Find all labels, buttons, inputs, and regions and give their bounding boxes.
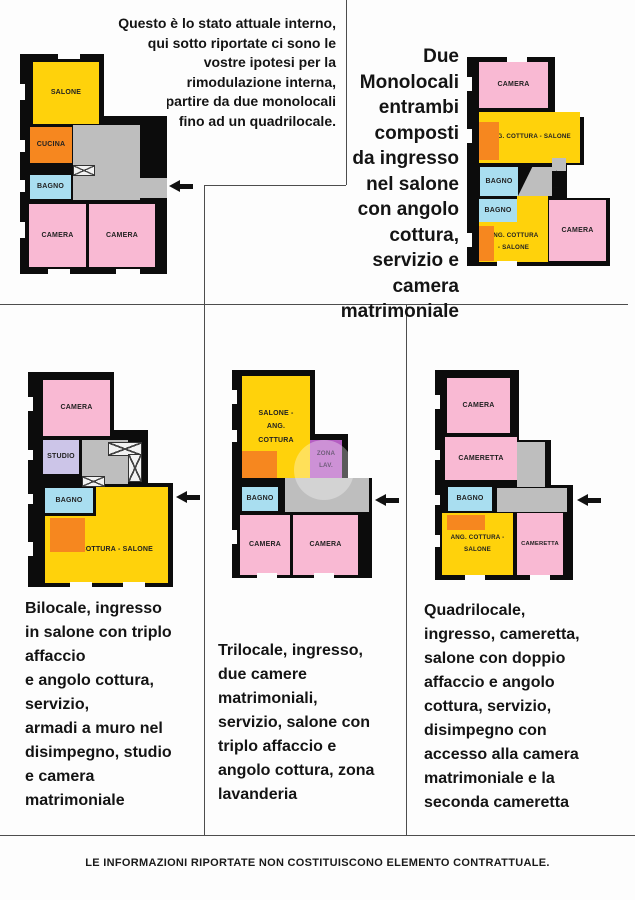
room-camera: CAMERA — [240, 515, 290, 575]
plan-cutout — [519, 370, 573, 440]
disclaimer-text: LE INFORMAZIONI RIPORTATE NON COSTITUISC… — [0, 857, 635, 869]
window-marker — [232, 430, 237, 442]
window-marker — [435, 395, 440, 409]
arrow-tail — [180, 184, 193, 189]
room-camera: CAMERA — [549, 200, 606, 261]
plan-cutout — [114, 372, 173, 430]
room-bagno: BAGNO — [480, 167, 518, 196]
monolocali-title: Due Monolocali entrambi composti da ingr… — [285, 44, 459, 325]
floorplan-quadrilocale: CAMERA CAMERETTA BAGNO ANG. COTTURA - SA… — [435, 370, 573, 580]
window-marker — [20, 140, 25, 152]
window-marker — [314, 573, 334, 578]
room-bagno: BAGNO — [479, 199, 517, 222]
entry-corridor — [567, 165, 610, 198]
window-marker — [465, 575, 485, 580]
room-cameretta: CAMERETTA — [517, 513, 563, 575]
arrow-head — [577, 494, 588, 506]
window-marker — [232, 390, 237, 404]
window-marker — [435, 495, 440, 505]
window-marker — [467, 129, 472, 143]
floorplan-stato-attuale: SALONE CUCINA BAGNO CAMERA CAMERA — [20, 54, 167, 274]
window-marker — [530, 575, 550, 580]
trilocale-description: Trilocale, ingresso, due camere matrimon… — [218, 639, 400, 807]
window-marker — [20, 180, 25, 192]
room-camera: CAMERA — [447, 378, 510, 433]
room-camera: CAMERA — [43, 380, 110, 436]
room-salone: SALONE — [33, 62, 99, 124]
floorplan-trilocale: SALONE - ANG. COTTURA ZONA LAV. BAGNO CA… — [232, 370, 372, 578]
wardrobe-hatch — [128, 454, 142, 482]
window-marker — [20, 222, 25, 238]
kitchen-corner — [447, 515, 485, 530]
hallway — [73, 125, 140, 200]
room-camera: CAMERA — [293, 515, 358, 575]
wardrobe-hatch — [73, 165, 95, 176]
plan-cutout — [315, 370, 372, 434]
window-marker — [467, 233, 472, 247]
room-cucina: CUCINA — [30, 127, 72, 163]
plan-cutout — [555, 57, 610, 117]
room-bagno: BAGNO — [45, 488, 93, 513]
window-marker — [116, 269, 140, 274]
plan-cutout — [148, 430, 173, 483]
arrow-tail — [187, 495, 200, 500]
room-camera: CAMERA — [479, 62, 548, 108]
room-bagno: BAGNO — [448, 487, 492, 511]
hallway-exit — [140, 178, 167, 198]
watermark-circle — [294, 440, 354, 500]
room-cameretta: CAMERETTA — [445, 437, 517, 480]
room-camera: CAMERA — [89, 204, 155, 267]
window-marker — [58, 54, 80, 59]
entrance-arrow-icon — [169, 180, 193, 192]
window-marker — [28, 397, 33, 411]
room-bagno: BAGNO — [30, 175, 71, 199]
entrance-arrow-icon — [176, 491, 200, 503]
salone-column — [96, 487, 168, 516]
kitchen-corner — [479, 226, 494, 261]
quadrilocale-description: Quadrilocale, ingresso, cameretta, salon… — [424, 599, 614, 815]
room-studio: STUDIO — [43, 440, 79, 474]
window-marker — [435, 535, 440, 547]
window-marker — [232, 530, 237, 544]
kitchen-corner — [479, 122, 499, 160]
window-marker — [28, 494, 33, 504]
wardrobe-hatch — [82, 476, 105, 487]
window-marker — [123, 582, 145, 587]
plan-cutout — [584, 117, 610, 165]
kitchen-corner — [50, 518, 85, 552]
window-marker — [48, 269, 70, 274]
arrow-head — [169, 180, 180, 192]
window-marker — [497, 261, 517, 266]
hallway — [517, 442, 545, 487]
hallway — [518, 167, 552, 196]
window-marker — [507, 57, 527, 62]
entry-arrow-up-icon: ↑ — [554, 169, 559, 179]
room-bagno: BAGNO — [242, 487, 278, 511]
entrance-arrow-icon — [375, 494, 399, 506]
room-camera: CAMERA — [29, 204, 86, 267]
entrance-arrow-icon — [577, 494, 601, 506]
window-marker — [435, 450, 440, 460]
window-marker — [28, 542, 33, 556]
window-marker — [467, 77, 472, 91]
window-marker — [257, 573, 277, 578]
plan-cutout — [551, 440, 573, 485]
hallway — [497, 488, 567, 512]
arrow-tail — [386, 498, 399, 503]
floorplan-monolocali: CAMERA ANG. COTTURA - SALONE BAGNO ↑ ← B… — [467, 57, 610, 266]
kitchen-column — [517, 196, 548, 222]
kitchen-corner — [242, 451, 277, 478]
plan-cutout — [104, 54, 167, 116]
divider-footer — [0, 835, 635, 836]
floorplan-bilocale: CAMERA STUDIO BAGNO ANG. COTTURA - SALON… — [28, 372, 173, 587]
window-marker — [28, 450, 33, 460]
arrow-tail — [588, 498, 601, 503]
entry-arrow-left-icon: ← — [551, 182, 561, 192]
window-marker — [70, 582, 92, 587]
bilocale-description: Bilocale, ingresso in salone con triplo … — [25, 597, 205, 813]
arrow-head — [176, 491, 187, 503]
divider-right-column — [406, 304, 407, 835]
window-marker — [20, 84, 25, 100]
arrow-head — [375, 494, 386, 506]
